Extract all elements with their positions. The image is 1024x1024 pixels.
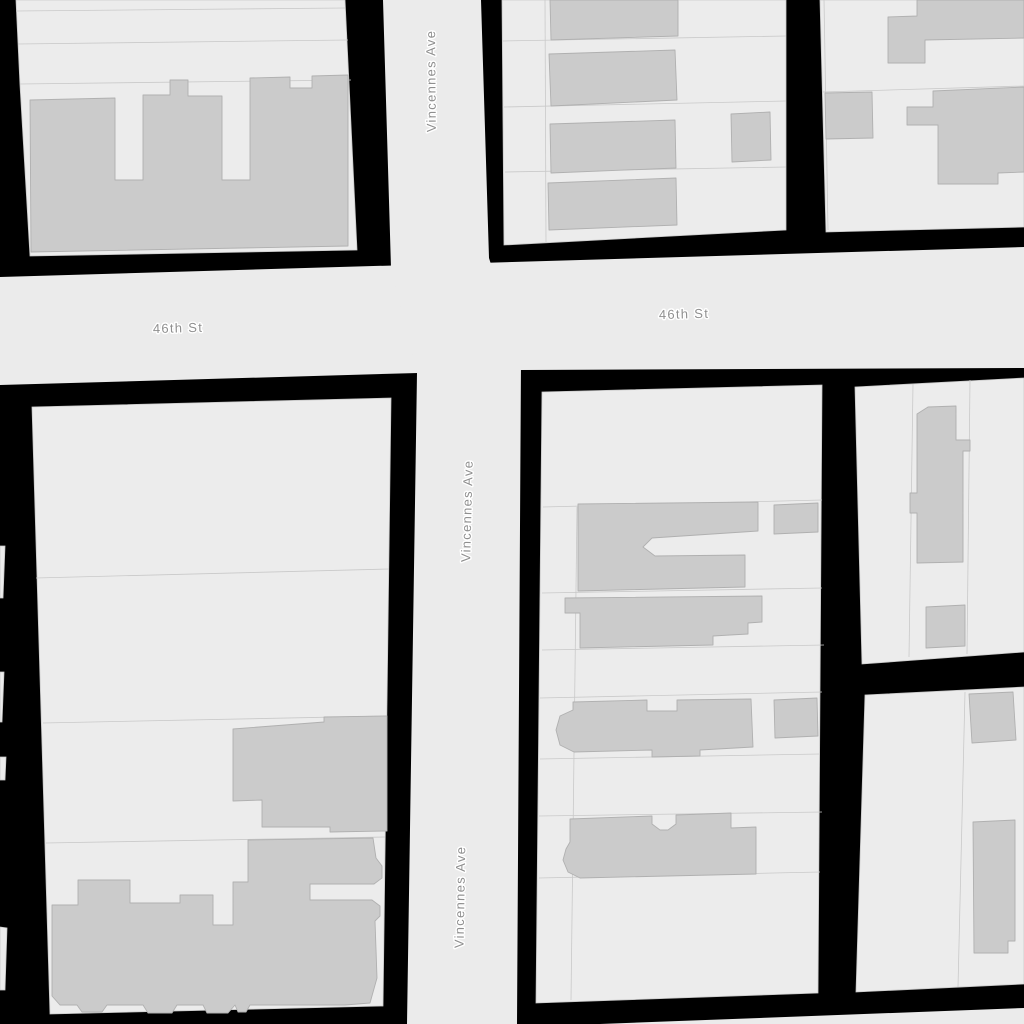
building-footprint [550,120,676,173]
building-footprint [825,92,873,139]
building-footprint [549,50,677,106]
edge-sliver-west-3 [0,757,6,780]
building-footprint [774,503,818,534]
building-footprint [30,75,348,252]
building-footprint [731,112,771,162]
building-footprint [969,692,1016,743]
street-label: Vincennes Ave [458,460,476,563]
block-bottom-middle [536,385,822,1003]
street-label: Vincennes Ave [452,846,469,949]
building-footprint [973,820,1015,953]
street-label: 46th St [153,320,204,336]
building-footprint [550,0,678,40]
building-footprint [774,698,818,738]
map-tile-layer: Vincennes Ave46th St46th StVincennes Ave… [0,0,1024,1024]
building-footprint [926,605,965,648]
map-canvas[interactable]: Vincennes Ave46th St46th StVincennes Ave… [0,0,1024,1024]
street-label: 46th St [659,306,710,322]
building-footprint [548,178,677,230]
street-label: Vincennes Ave [423,30,439,133]
